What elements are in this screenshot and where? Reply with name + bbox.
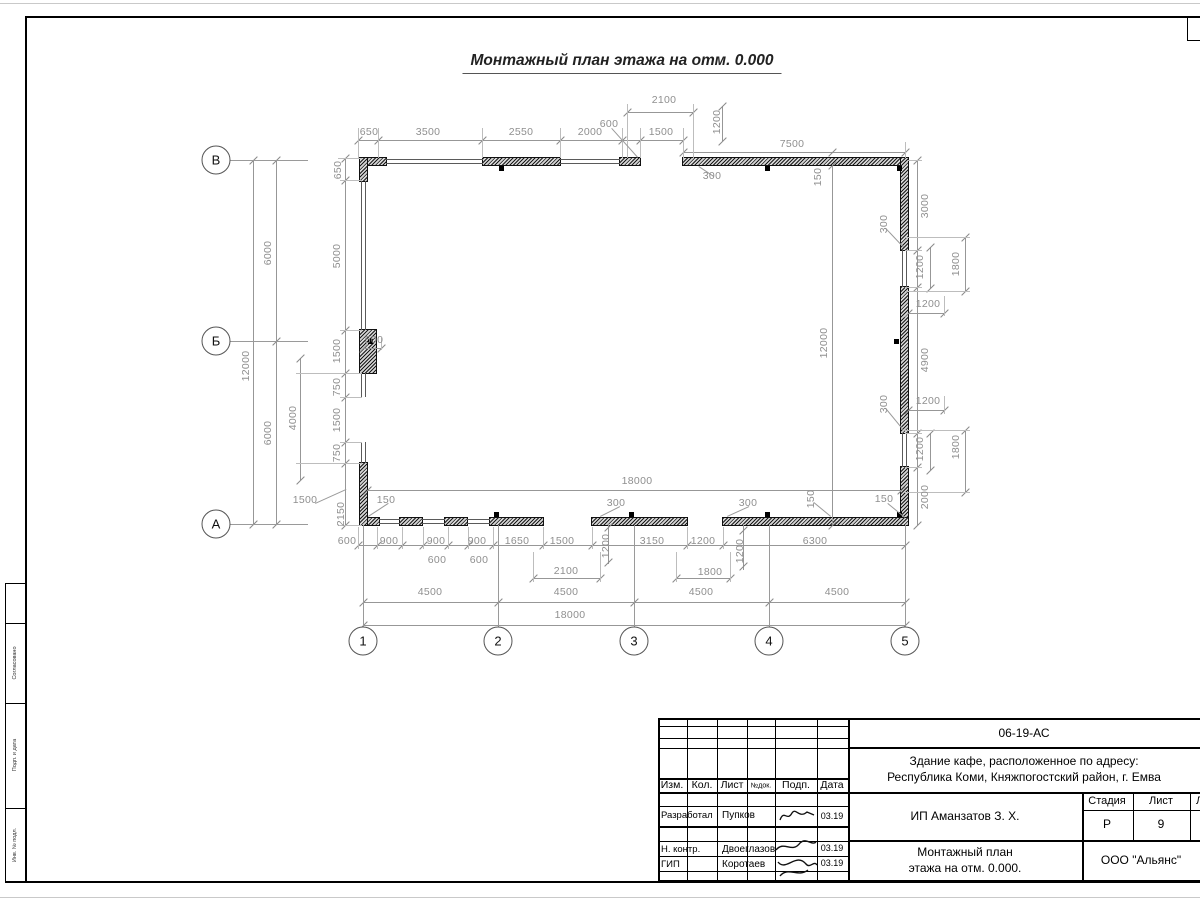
extension-line [687, 527, 688, 549]
drawing-title: Монтажный план этажа на отм. 0.000 [462, 52, 781, 74]
extension-line [944, 296, 945, 316]
axis-line [634, 525, 635, 627]
corner-stamp-box [1187, 16, 1188, 40]
extension-line [905, 237, 970, 238]
dim-label: 150 [377, 494, 395, 506]
extension-line [905, 492, 970, 493]
dim-label: 1200 [734, 539, 746, 564]
corner-stamp-box-bottom [1187, 40, 1200, 41]
dimension-line [345, 158, 346, 525]
dim-label: 1800 [950, 435, 962, 460]
dimension-line [253, 160, 254, 524]
extension-line [693, 104, 694, 158]
extension-line [944, 396, 945, 414]
dimension-line [533, 578, 600, 579]
dim-label: 500 [365, 334, 383, 346]
left-strip-div3 [5, 703, 25, 704]
dimension-line [363, 348, 381, 349]
dim-label: 1800 [950, 252, 962, 277]
dimension-line [930, 247, 931, 288]
dimension-line [965, 430, 966, 492]
extension-line [340, 442, 362, 443]
axis-line [363, 525, 364, 627]
extension-line [340, 330, 362, 331]
column-marker [765, 512, 770, 517]
dim-label: 650 [360, 126, 378, 138]
extension-line [723, 527, 724, 549]
axis-line [230, 341, 308, 342]
dimension-line [832, 165, 833, 525]
dim-label: 7500 [780, 138, 805, 150]
tb-date-gip: 03.19 [821, 858, 844, 868]
tb-object-line1: Здание кафе, расположенное по адресу: [909, 754, 1138, 768]
signature-pupkov [777, 806, 817, 826]
dim-label: 1500 [331, 339, 343, 364]
column-marker [629, 512, 634, 517]
dim-label: 1800 [698, 566, 723, 578]
extension-line [905, 142, 906, 158]
tb-sheet-label: Лист [1149, 795, 1173, 807]
tb-client: ИП Аманзатов З. Х. [910, 809, 1019, 823]
extension-line [358, 527, 359, 549]
axis-circle-col: 4 [755, 627, 784, 656]
axis-circle-col: 2 [484, 627, 513, 656]
extension-line [402, 527, 403, 549]
strip-label-soglasovano: Согласовано [12, 646, 18, 679]
dimension-line [627, 112, 693, 113]
dim-label: 4500 [825, 586, 850, 598]
dim-label: 1200 [914, 437, 926, 462]
window-segment [379, 519, 400, 524]
dimension-line [908, 313, 944, 314]
tb-name-korotaev: Коротаев [722, 859, 765, 870]
extension-line [448, 527, 449, 549]
column-marker [765, 166, 770, 171]
dim-label: 300 [878, 395, 890, 413]
extension-line [622, 128, 623, 158]
dim-label: 2100 [554, 565, 579, 577]
page-edge-bottom [0, 897, 1200, 898]
wall-segment [592, 518, 687, 525]
dim-label: 1200 [916, 298, 941, 310]
extension-line [908, 160, 922, 161]
extension-line [340, 180, 362, 181]
extension-line [730, 552, 731, 582]
extension-line [543, 527, 544, 549]
dim-label: 2000 [578, 126, 603, 138]
window-segment [422, 519, 445, 524]
dim-label: 4500 [418, 586, 443, 598]
tb-sheets-label: Листов [1196, 795, 1200, 807]
tb-date-nkontr: 03.19 [821, 843, 844, 853]
tb-name-pupkov: Пупков [722, 810, 755, 821]
tb-sheet-value: 9 [1158, 817, 1165, 831]
window-segment [902, 433, 907, 467]
axis-circle-row: А [202, 510, 231, 539]
dim-label: 1200 [711, 110, 723, 135]
extension-line [905, 430, 970, 431]
extension-line [905, 287, 922, 288]
signature-nkontr-gip [772, 838, 820, 880]
dimension-line [917, 160, 918, 525]
extension-line [340, 397, 362, 398]
tb-col-podp: Подп. [782, 779, 810, 791]
tb-role-razrabotal: Разработал [661, 810, 713, 821]
window-segment [467, 519, 490, 524]
tb-role-nkontr: Н. контр. [661, 844, 700, 855]
extension-line [423, 527, 424, 549]
extension-line [905, 467, 922, 468]
frame-top [25, 16, 1200, 18]
axis-line [498, 525, 499, 627]
extension-line [377, 527, 378, 549]
dim-label: 300 [878, 215, 890, 233]
extension-line [296, 463, 362, 464]
extension-line [627, 104, 628, 158]
dim-label: 12000 [240, 351, 252, 382]
dim-label: 4500 [689, 586, 714, 598]
dim-label: 3500 [416, 126, 441, 138]
strip-label-inv-podl: Инв. № подл. [12, 828, 18, 862]
dim-label: 750 [331, 378, 343, 396]
page-edge-top [0, 3, 1200, 4]
extension-line [683, 128, 684, 160]
dimension-line [683, 152, 905, 153]
left-strip-div1 [5, 583, 25, 584]
extension-line [592, 527, 593, 549]
dim-label: 3150 [640, 535, 665, 547]
dim-label: 4900 [919, 348, 931, 373]
tb-sheet-title-line2: этажа на отм. 0.000. [909, 861, 1022, 875]
dim-label: 300 [607, 497, 625, 509]
dim-label: 4500 [554, 586, 579, 598]
dim-label: 150 [812, 168, 824, 186]
dim-label: 6000 [262, 421, 274, 446]
dim-label: 150 [805, 490, 817, 508]
left-strip-div2 [5, 623, 25, 624]
dimension-line [965, 237, 966, 291]
dim-label: 750 [331, 444, 343, 462]
tb-role-gip: ГИП [661, 859, 680, 870]
dimension-line [358, 140, 683, 141]
axis-circle-col: 1 [349, 627, 378, 656]
window-segment [560, 159, 620, 164]
dim-label: 2000 [919, 485, 931, 510]
extension-line [338, 158, 362, 159]
extension-line [905, 433, 922, 434]
wall-segment [445, 518, 467, 525]
tb-col-izm: Изм. [661, 779, 684, 791]
dim-label: 18000 [622, 475, 653, 487]
axis-circle-row: В [202, 146, 231, 175]
column-marker [494, 512, 499, 517]
extension-line [905, 291, 970, 292]
window-segment [386, 159, 483, 164]
tb-sheet-title-line1: Монтажный план [917, 845, 1013, 859]
column-marker [894, 339, 899, 344]
dim-label: 2100 [652, 94, 677, 106]
dim-label: 1200 [914, 255, 926, 280]
window-segment [361, 442, 366, 463]
dim-label: 1500 [293, 494, 318, 506]
dim-label: 650 [332, 161, 344, 179]
axis-line [905, 525, 906, 627]
dim-label: 2150 [335, 502, 347, 527]
dimension-line [676, 578, 730, 579]
tb-col-ndoc: №док. [751, 783, 772, 790]
extension-line [482, 128, 483, 158]
axis-circle-row: Б [202, 327, 231, 356]
wall-segment [483, 158, 560, 165]
extension-line [640, 128, 641, 158]
dim-label: 1500 [331, 408, 343, 433]
dim-label: 6300 [803, 535, 828, 547]
wall-segment [723, 518, 908, 525]
dim-label: 12000 [818, 328, 830, 359]
wall-segment [683, 158, 908, 165]
dimension-line [367, 490, 901, 491]
dim-label: 4000 [287, 406, 299, 431]
column-marker [897, 166, 902, 171]
window-segment [361, 181, 366, 330]
dim-label: 1200 [600, 534, 612, 559]
dim-label: 3000 [919, 194, 931, 219]
tb-doc-code: 06-19-АС [998, 726, 1049, 740]
tb-stage-label: Стадия [1088, 795, 1126, 807]
dim-label: 600 [600, 118, 618, 130]
dim-label: 150 [875, 493, 893, 505]
dim-label: 900 [380, 535, 398, 547]
dim-label: 600 [338, 535, 356, 547]
tb-col-list: Лист [721, 779, 744, 791]
dim-label: 600 [428, 554, 446, 566]
tb-company: ООО "Альянс" [1101, 853, 1181, 867]
dim-label: 600 [470, 554, 488, 566]
wall-segment [620, 158, 640, 165]
extension-line [533, 552, 534, 582]
extension-line [296, 373, 362, 374]
extension-line [905, 250, 922, 251]
window-segment [361, 373, 366, 397]
frame-left [25, 16, 27, 882]
extension-line [493, 527, 494, 549]
dim-label: 1500 [550, 535, 575, 547]
tb-object-line2: Республика Коми, Княжпогостский район, г… [887, 770, 1161, 784]
dimension-line [930, 433, 931, 470]
extension-line [560, 128, 561, 158]
left-strip-outer [5, 583, 6, 882]
tb-col-kol: Кол. [692, 779, 713, 791]
wall-segment [400, 518, 422, 525]
dim-label: 1500 [649, 126, 674, 138]
tb-col-data: Дата [820, 779, 843, 791]
axis-line [230, 524, 308, 525]
wall-segment [490, 518, 543, 525]
drawing-sheet: Согласовано Подп. и дата Инв. № подл. Мо… [0, 0, 1200, 900]
dim-label: 6000 [262, 241, 274, 266]
extension-line [676, 552, 677, 582]
dim-label: 5000 [331, 244, 343, 269]
axis-line [769, 525, 770, 627]
dim-label: 1200 [691, 535, 716, 547]
dim-label: 18000 [555, 609, 586, 621]
strip-label-podp-data: Подп. и дата [12, 739, 18, 771]
dim-label: 300 [703, 170, 721, 182]
left-strip-div4 [5, 808, 25, 809]
axis-circle-col: 3 [620, 627, 649, 656]
dim-label: 900 [468, 535, 486, 547]
dim-label: 1200 [916, 395, 941, 407]
axis-line [230, 160, 308, 161]
dimension-line [300, 358, 301, 480]
dim-label: 2550 [509, 126, 534, 138]
tb-stage-value: Р [1103, 817, 1111, 831]
dim-label: 300 [739, 497, 757, 509]
leader-line [611, 128, 638, 158]
column-marker [499, 166, 504, 171]
dim-label: 900 [427, 535, 445, 547]
tb-date-razrabotal: 03.19 [821, 811, 844, 821]
tb-name-dvoeglazov: Двоеглазов [722, 844, 775, 855]
dim-label: 1650 [505, 535, 530, 547]
window-segment [902, 250, 907, 287]
wall-segment [360, 158, 367, 181]
dimension-line [908, 410, 944, 411]
axis-circle-col: 5 [891, 627, 920, 656]
